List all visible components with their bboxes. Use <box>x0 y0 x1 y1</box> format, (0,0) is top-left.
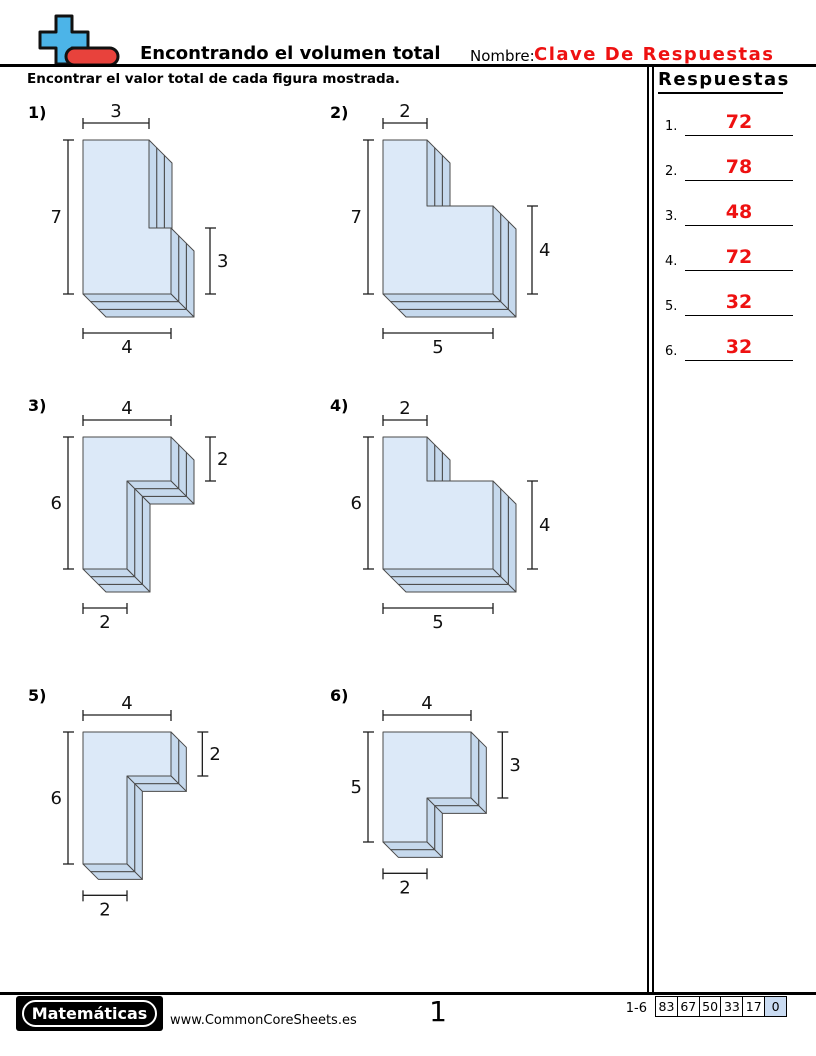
dim-label-top: 4 <box>121 398 132 419</box>
prism-depth-slab <box>91 302 187 310</box>
dim-label-left: 5 <box>351 777 362 798</box>
volume-figure-2: 2745 <box>330 101 650 393</box>
prism-depth-slab <box>135 784 143 880</box>
prism-depth-slab <box>91 872 143 880</box>
dim-label-left: 7 <box>51 207 62 228</box>
dim-label-right: 3 <box>509 755 520 776</box>
answer-number: 5. <box>665 299 677 314</box>
prism-depth-slab <box>427 798 479 806</box>
score-cell: 33 <box>720 996 743 1017</box>
prism-depth-slab <box>435 806 487 814</box>
dim-label-right: 3 <box>217 251 228 272</box>
answer-row-2: 2. 78 <box>660 143 800 183</box>
dim-label-bottom: 2 <box>399 877 410 898</box>
score-range-label: 1-6 <box>590 1001 647 1016</box>
prism-depth-slab <box>435 806 443 858</box>
dim-label-left: 6 <box>51 788 62 809</box>
prism-front-face <box>383 732 471 842</box>
prism-depth-slab <box>142 496 150 592</box>
prism-depth-slab <box>391 302 509 310</box>
prism-depth-slab <box>171 228 179 302</box>
prism-depth-slab <box>501 489 509 585</box>
prism-depth-slab <box>127 481 179 489</box>
dim-label-left: 6 <box>51 493 62 514</box>
answer-number: 3. <box>665 209 677 224</box>
dim-label-bottom: 2 <box>99 899 110 920</box>
answer-value: 72 <box>685 246 793 268</box>
dim-label-right: 2 <box>209 744 220 765</box>
prism-depth-slab <box>142 496 194 504</box>
name-label: Nombre: <box>470 47 535 65</box>
score-table: 83 67 50 33 17 0 <box>655 996 787 1017</box>
answer-blank-line <box>685 135 793 136</box>
answer-number: 2. <box>665 164 677 179</box>
problem-3: 3) 4622 <box>28 394 348 686</box>
prism-depth-slab <box>127 481 135 577</box>
prism-depth-slab <box>98 309 194 317</box>
prism-depth-slab <box>127 776 135 872</box>
plus-minus-logo-icon <box>30 10 130 68</box>
prism-depth-slab <box>471 732 479 806</box>
prism-depth-slab <box>179 740 187 792</box>
prism-depth-slab <box>186 243 194 317</box>
dim-label-right: 4 <box>539 240 550 261</box>
prism-depth-slab <box>149 140 157 236</box>
prism-depth-slab <box>398 309 516 317</box>
prism-depth-slab <box>493 481 501 577</box>
dim-label-left: 7 <box>351 207 362 228</box>
prism-depth-slab <box>501 214 509 310</box>
prism-depth-slab <box>427 140 435 214</box>
score-cell: 17 <box>742 996 765 1017</box>
prism-depth-slab <box>179 236 187 310</box>
answer-number: 6. <box>665 344 677 359</box>
score-cell-zero: 0 <box>764 996 787 1017</box>
problem-2: 2) 2745 <box>330 101 650 393</box>
instruction-text: Encontrar el valor total de cada figura … <box>27 71 400 87</box>
answer-blank-line <box>685 180 793 181</box>
volume-figure-4: 2645 <box>330 394 650 686</box>
prism-depth-slab <box>171 732 179 784</box>
answer-row-1: 1. 72 <box>660 98 800 138</box>
answer-value: 48 <box>685 201 793 223</box>
prism-depth-slab <box>508 221 516 317</box>
volume-figure-3: 4622 <box>28 394 348 686</box>
answer-number: 4. <box>665 254 677 269</box>
dim-label-bottom: 4 <box>121 337 132 358</box>
header-rule <box>0 64 816 67</box>
prism-depth-slab <box>391 577 509 585</box>
website-url: www.CommonCoreSheets.es <box>170 1013 357 1028</box>
name-value: Clave De Respuestas <box>534 44 775 65</box>
volume-figure-1: 3734 <box>28 101 348 393</box>
prism-depth-slab <box>83 569 135 577</box>
prism-depth-slab <box>98 584 150 592</box>
dim-label-top: 2 <box>399 398 410 419</box>
prism-front-face <box>83 732 171 864</box>
dim-label-top: 4 <box>421 693 432 714</box>
prism-depth-slab <box>135 489 143 585</box>
prism-depth-slab <box>427 798 435 850</box>
prism-depth-slab <box>508 496 516 592</box>
prism-depth-slab <box>135 489 187 497</box>
problem-1: 1) 3734 <box>28 101 348 393</box>
answers-title: Respuestas <box>658 69 783 94</box>
score-cell: 50 <box>699 996 722 1017</box>
answer-value: 72 <box>685 111 793 133</box>
prism-depth-slab <box>127 776 179 784</box>
dim-label-right: 2 <box>217 449 228 470</box>
answer-blank-line <box>685 315 793 316</box>
prism-depth-slab <box>479 740 487 814</box>
prism-depth-slab <box>398 584 516 592</box>
dim-label-top: 4 <box>121 693 132 714</box>
dim-label-bottom: 2 <box>99 612 110 633</box>
problem-5: 5) 4622 <box>28 684 348 976</box>
prism-depth-slab <box>83 864 135 872</box>
prism-depth-slab <box>383 569 501 577</box>
page-number: 1 <box>388 995 488 1028</box>
dim-label-top: 3 <box>110 101 121 122</box>
answer-row-6: 6. 32 <box>660 323 800 363</box>
problem-4: 4) 2645 <box>330 394 650 686</box>
answer-number: 1. <box>665 119 677 134</box>
prism-depth-slab <box>179 445 187 497</box>
dim-label-bottom: 5 <box>432 337 443 358</box>
answer-value: 78 <box>685 156 793 178</box>
problem-6: 6) 4532 <box>330 684 650 976</box>
volume-figure-5: 4622 <box>28 684 348 976</box>
answer-blank-line <box>685 360 793 361</box>
answers-divider-inner <box>652 66 654 992</box>
dim-label-right: 4 <box>539 515 550 536</box>
prism-depth-slab <box>383 294 501 302</box>
prism-depth-slab <box>391 850 443 858</box>
answer-row-3: 3. 48 <box>660 188 800 228</box>
brand-badge: Matemáticas <box>16 996 163 1031</box>
worksheet-page: Encontrando el volumen total Nombre: Cla… <box>0 0 816 1056</box>
prism-depth-slab <box>493 206 501 302</box>
page-title: Encontrando el volumen total <box>140 43 440 64</box>
prism-depth-slab <box>135 784 187 792</box>
answer-blank-line <box>685 270 793 271</box>
prism-depth-slab <box>83 294 179 302</box>
answer-row-4: 4. 72 <box>660 233 800 273</box>
prism-depth-slab <box>171 437 179 489</box>
score-cell: 83 <box>655 996 678 1017</box>
prism-depth-slab <box>91 577 143 585</box>
prism-depth-slab <box>186 452 194 504</box>
volume-figure-6: 4532 <box>330 684 650 976</box>
answer-value: 32 <box>685 336 793 358</box>
dim-label-top: 2 <box>399 101 410 122</box>
prism-depth-slab <box>383 842 435 850</box>
dim-label-left: 6 <box>351 493 362 514</box>
answer-row-5: 5. 32 <box>660 278 800 318</box>
score-cell: 67 <box>677 996 700 1017</box>
answer-value: 32 <box>685 291 793 313</box>
brand-name: Matemáticas <box>22 1000 157 1027</box>
dim-label-bottom: 5 <box>432 612 443 633</box>
answer-blank-line <box>685 225 793 226</box>
